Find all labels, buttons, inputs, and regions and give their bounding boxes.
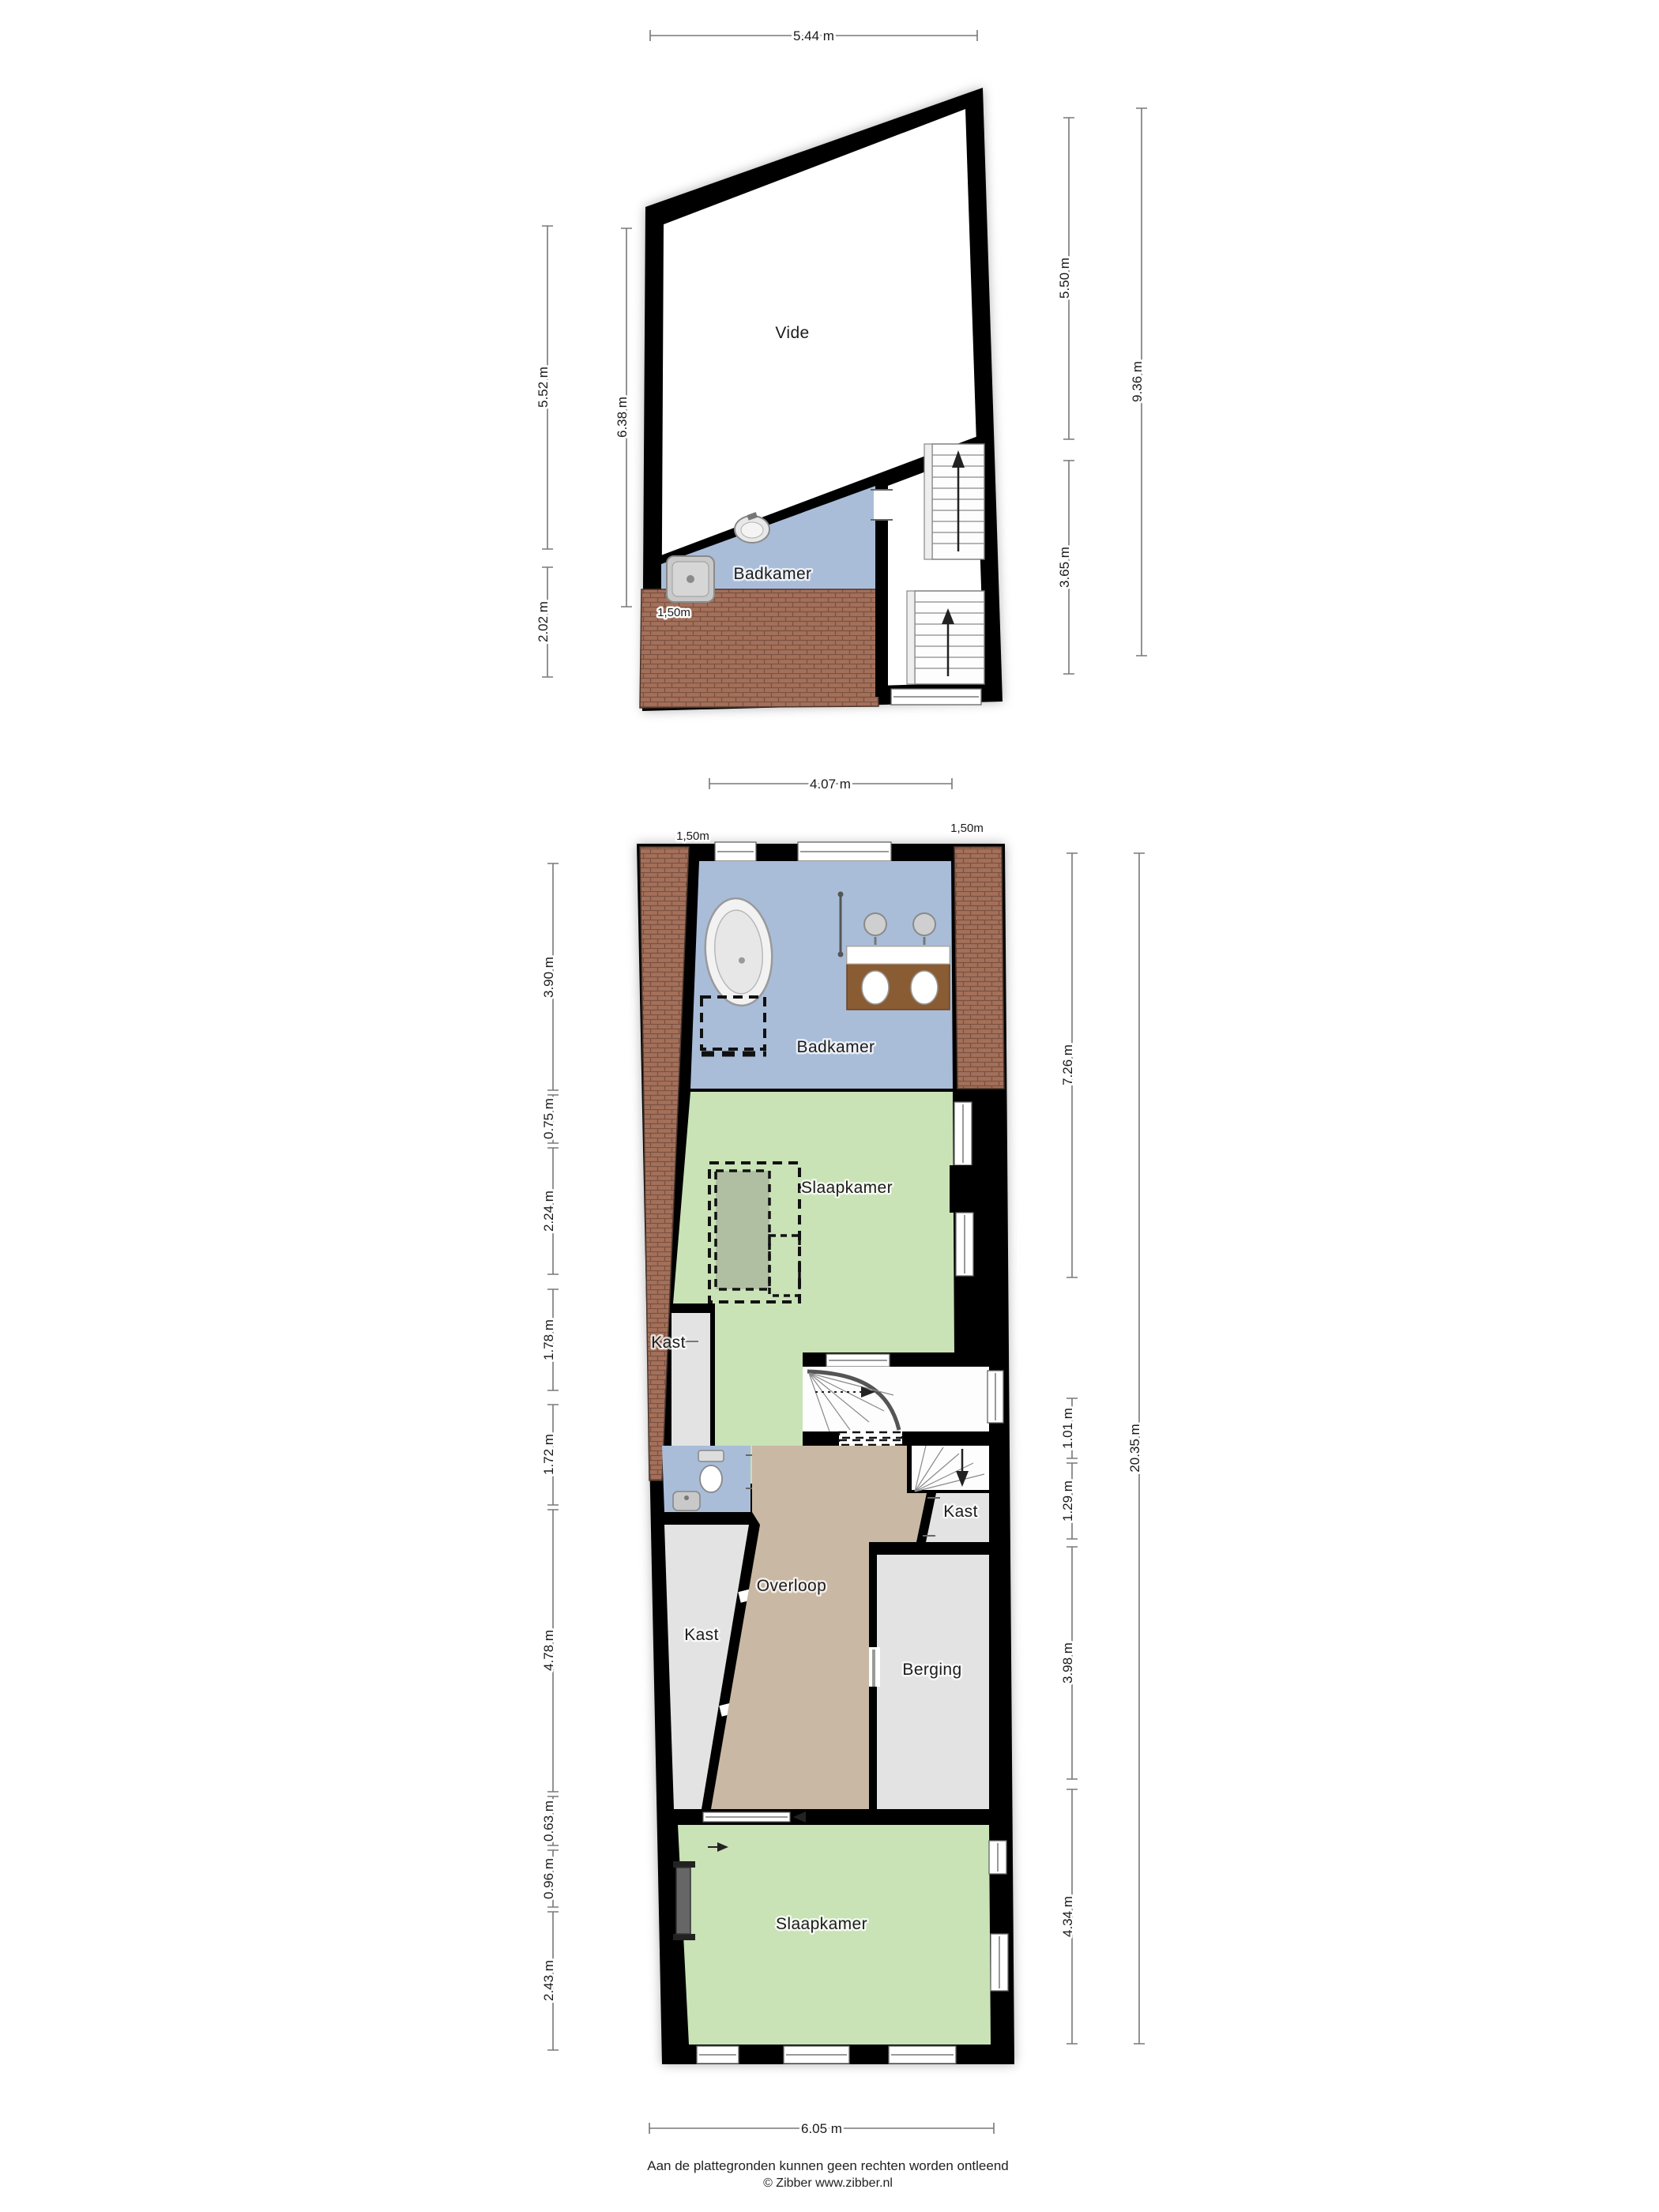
headroom-label-left: 1,50m: [676, 829, 709, 843]
dim-right-upper: 5.50 m: [1057, 118, 1074, 439]
svg-text:5.52 m: 5.52 m: [536, 367, 551, 408]
svg-text:0.96 m: 0.96 m: [541, 1858, 556, 1899]
room-label-kast-lower-left: Kast: [684, 1626, 719, 1644]
dim-left-7: 0.63 m: [541, 1796, 559, 1845]
dim-left-inner: 6.38 m: [615, 228, 632, 607]
headroom-label-right: 1,50m: [950, 822, 984, 835]
dim-left-lower: 2.02 m: [536, 567, 553, 677]
dim-top-width: 5.44 m: [650, 28, 977, 43]
dim-left-1: 3.90 m: [541, 863, 559, 1090]
stairs-lower-flight: [915, 591, 984, 684]
room-label-slaapkamer-2: Slaapkamer: [776, 1915, 867, 1933]
dim-left-3: 2.24 m: [541, 1148, 559, 1274]
dim-bottom-width: 6.05 m: [649, 2121, 994, 2136]
svg-text:20.35 m: 20.35 m: [1127, 1424, 1142, 1472]
dim-right-2: 1.01 m: [1060, 1398, 1078, 1458]
footer-disclaimer: Aan de plattegronden kunnen geen rechten…: [647, 2158, 1008, 2173]
stairs-winder-down: [912, 1446, 989, 1490]
mirror-icon: [913, 913, 935, 935]
room-label-vide: Vide: [775, 324, 809, 342]
wardrobe-inner: [716, 1171, 769, 1289]
svg-text:3.90 m: 3.90 m: [541, 957, 556, 998]
svg-text:2.24 m: 2.24 m: [541, 1191, 556, 1232]
room-label-badkamer: Badkamer: [734, 565, 812, 583]
svg-text:3.65 m: 3.65 m: [1057, 547, 1072, 588]
shower-icon: [667, 556, 714, 602]
wall-pier: [950, 1165, 975, 1213]
floorplan-page: Vide Badkamer 1,50m 5.44 m 5.52 m 2.02 m…: [0, 0, 1659, 2212]
dim-right-1: 7.26 m: [1060, 853, 1078, 1277]
toilet-icon: [698, 1450, 724, 1492]
svg-text:6.05 m: 6.05 m: [801, 2121, 842, 2136]
svg-text:7.26 m: 7.26 m: [1060, 1044, 1075, 1085]
svg-text:2.43 m: 2.43 m: [541, 1960, 556, 2001]
svg-text:1.01 m: 1.01 m: [1060, 1408, 1075, 1449]
svg-text:5.44 m: 5.44 m: [793, 28, 834, 43]
svg-text:4.78 m: 4.78 m: [541, 1630, 556, 1671]
svg-text:1.72 m: 1.72 m: [541, 1434, 556, 1475]
svg-text:4.34 m: 4.34 m: [1060, 1896, 1075, 1937]
svg-text:4.07 m: 4.07 m: [810, 777, 851, 792]
dim-left-main: 5.52 m: [536, 226, 553, 549]
dim-right-total: 20.35 m: [1127, 853, 1145, 2044]
svg-text:1.29 m: 1.29 m: [1060, 1480, 1075, 1522]
stairs-lower-rail: [907, 591, 915, 684]
dim-right-lower: 3.65 m: [1057, 461, 1074, 674]
footer: Aan de plattegronden kunnen geen rechten…: [647, 2158, 1008, 2190]
room-berging: [877, 1555, 989, 1809]
svg-text:6.38 m: 6.38 m: [615, 397, 630, 438]
room-label-kast-upper-left: Kast: [651, 1334, 686, 1352]
hand-basin-icon: [673, 1492, 700, 1510]
dim-left-2: 0.75 m: [541, 1095, 559, 1143]
svg-text:5.50 m: 5.50 m: [1057, 258, 1072, 299]
mirror-icon: [864, 913, 886, 935]
svg-text:9.36 m: 9.36 m: [1130, 361, 1145, 402]
dim-left-5: 1.72 m: [541, 1405, 559, 1505]
dim-right-5: 4.34 m: [1060, 1789, 1078, 2044]
dim-left-6: 4.78 m: [541, 1510, 559, 1792]
dim-left-9: 2.43 m: [541, 1912, 559, 2050]
room-slaapkamer-2: [678, 1825, 991, 2045]
room-label-slaapkamer-1: Slaapkamer: [801, 1179, 893, 1197]
svg-text:1.78 m: 1.78 m: [541, 1319, 556, 1360]
dim-bottom-plan-top-width: 4.07 m: [709, 777, 952, 792]
dim-left-8: 0.96 m: [541, 1850, 559, 1907]
svg-text:2.02 m: 2.02 m: [536, 601, 551, 642]
room-label-berging: Berging: [902, 1661, 961, 1679]
stairs-upper-rail: [924, 444, 932, 559]
stair-door-gap: [874, 490, 890, 520]
footer-credit: © Zibber www.zibber.nl: [763, 2176, 893, 2190]
room-label-kast-right: Kast: [943, 1503, 978, 1521]
room-label-overloop: Overloop: [757, 1577, 826, 1595]
dim-left-4: 1.78 m: [541, 1289, 559, 1390]
plan-bottom: Badkamer Slaapkamer Kast Overloop Kast K…: [541, 777, 1145, 2136]
floorplan-canvas: Vide Badkamer 1,50m 5.44 m 5.52 m 2.02 m…: [0, 0, 1659, 2212]
roof-tiles-right: [954, 847, 1004, 1089]
dim-right-4: 3.98 m: [1060, 1547, 1078, 1779]
plan-top: Vide Badkamer 1,50m 5.44 m 5.52 m 2.02 m…: [536, 28, 1147, 711]
headroom-label: 1,50m: [657, 606, 690, 619]
dim-right-total: 9.36 m: [1130, 108, 1147, 656]
dim-right-3: 1.29 m: [1060, 1463, 1078, 1539]
svg-text:3.98 m: 3.98 m: [1060, 1642, 1075, 1683]
svg-text:0.75 m: 0.75 m: [541, 1098, 556, 1139]
svg-text:0.63 m: 0.63 m: [541, 1800, 556, 1841]
room-label-badkamer: Badkamer: [797, 1038, 875, 1056]
